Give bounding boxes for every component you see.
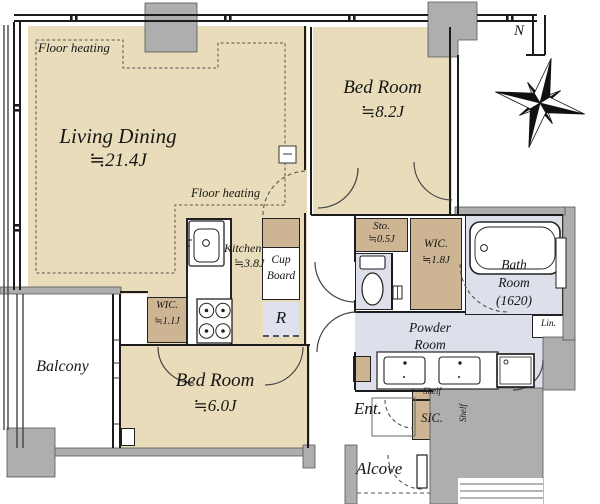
front-door-leaf [417,455,427,488]
wic-small-label: WIC. [147,300,187,312]
pillar-bottom-left [7,428,55,477]
pillar-top-left [145,3,197,52]
vanity-sinks-icon [377,352,498,389]
alcove-label: Alcove [356,459,402,479]
stove-icon [197,299,232,343]
bath-label-line1: Bath [465,257,563,273]
wic-large-label: WIC. [410,238,462,251]
storage-label: Sto. [355,220,408,233]
bedroom-main-label: Bed Room [313,77,452,99]
intercom-symbol [279,146,296,163]
door-jamb-symbol [393,286,402,299]
floor-plan: Floor heating Living Dining ≒21.4J Floor… [0,0,600,504]
cupboard-label-line2: Board [262,270,300,283]
bedroom-second-size: ≒6.0J [120,396,310,416]
wic-large-size: ≒1.8J [410,254,462,267]
powder-label-line1: Powder [370,320,490,336]
kitchen-size: ≒3.8J [234,257,264,271]
compass-rose-icon [484,47,596,159]
wic-small-size: ≒1.1J [147,316,187,328]
living-dining-size: ≒21.4J [38,150,198,172]
floor-heating-label-living: Floor heating [38,41,110,56]
powder-label-line2: Room [370,337,490,353]
sic-label: SIC. [412,411,452,425]
cupboard-label-line1: Cup [262,254,300,267]
bath-label-line2: Room [465,275,563,291]
living-dining-label: Living Dining [38,124,198,148]
kitchen-sink-icon [186,221,224,266]
storage-size: ≒0.5J [355,234,408,246]
entrance-label: Ent. [354,399,382,419]
bath-label-line3: (1620) [465,293,563,309]
balcony-window-ticks [113,340,120,424]
shelf-top-label: Shelf [412,386,452,396]
toilet-icon [360,256,385,305]
floorplan-structure [0,0,600,504]
corridor-steps [458,478,543,504]
bedroom-main-size: ≒8.2J [313,102,452,122]
refrigerator-label: R [263,308,299,328]
compass-north-label: N [504,23,534,40]
balcony-label: Balcony [15,358,110,376]
washer-pan-icon [497,354,534,387]
kitchen-label: Kitchen [224,242,261,256]
pillar-top-right [428,2,477,57]
bedroom-second-label: Bed Room [120,370,310,392]
linen-label: Lin. [532,319,565,330]
shelf-side-label: Shelf [458,392,468,434]
floor-heating-label-kitchen: Floor heating [191,186,260,200]
